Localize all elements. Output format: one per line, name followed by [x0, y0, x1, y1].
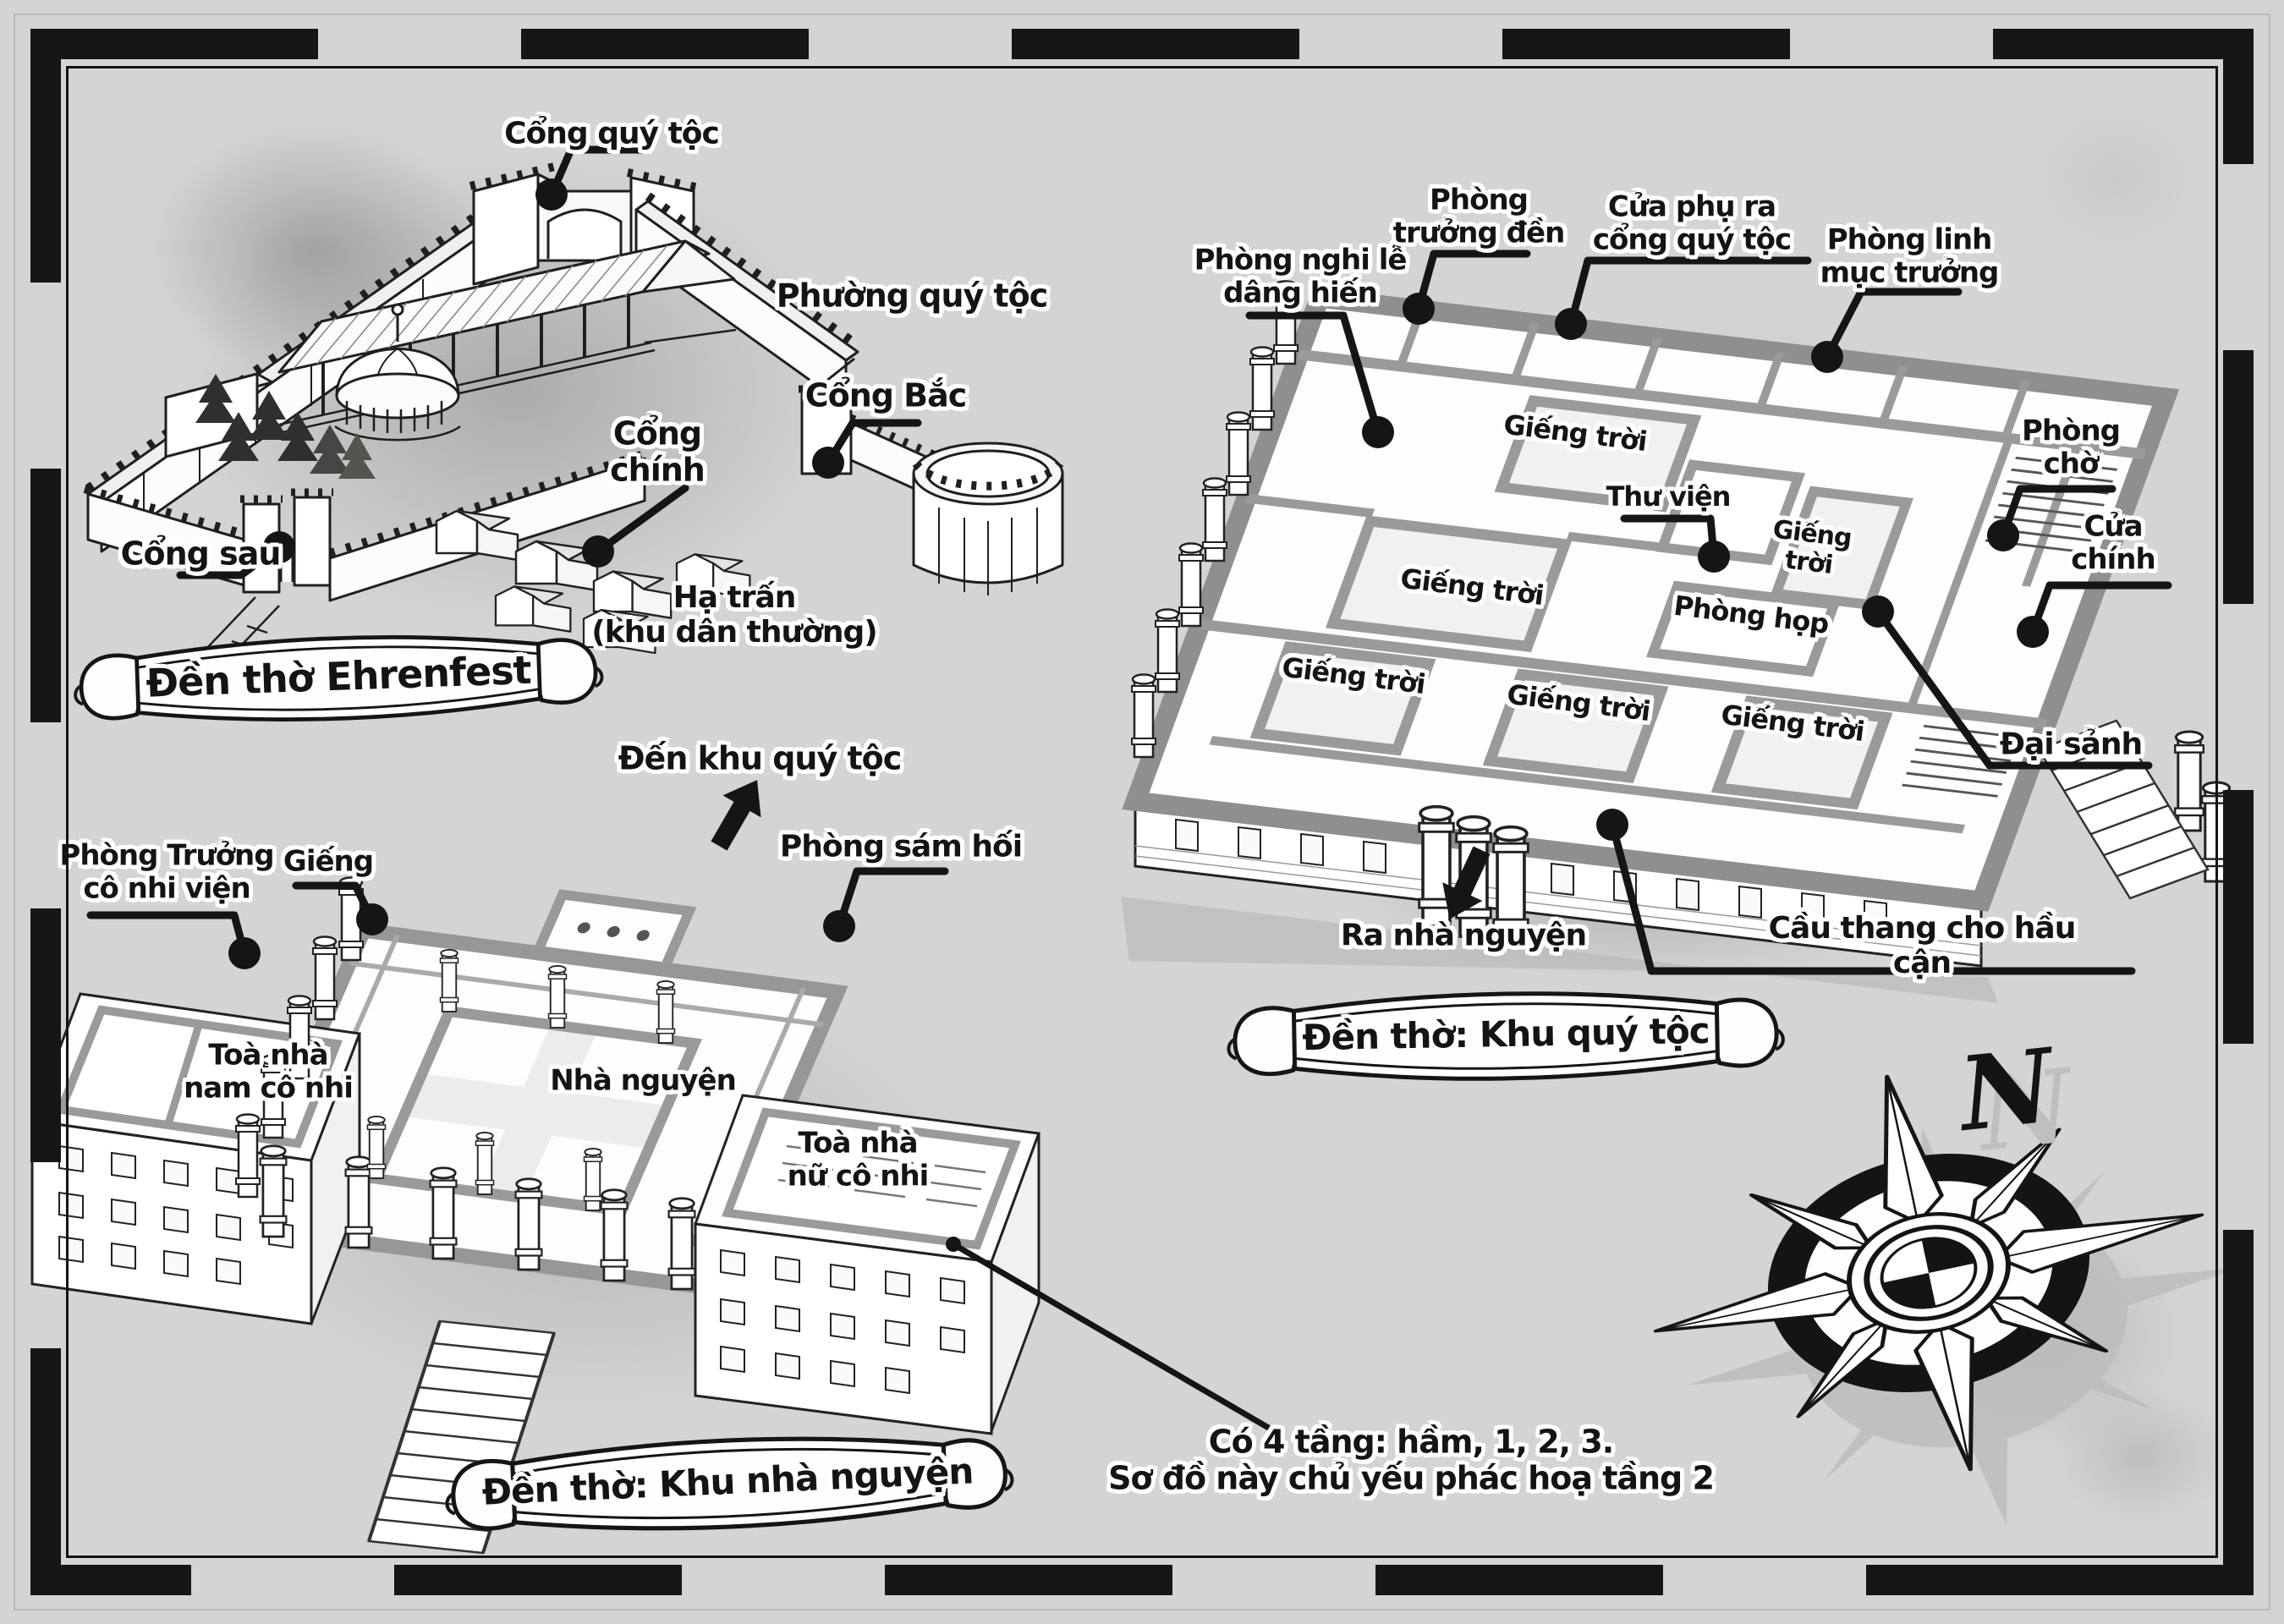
map-page: Cổng quý tộcPhường quý tộcCổng BắcCổng c…: [0, 0, 2284, 1624]
frame-corner: [30, 29, 61, 130]
frame-corner: [2223, 29, 2254, 130]
frame-dash-bottom: [30, 1565, 2254, 1595]
frame-dash-top: [30, 29, 2254, 59]
frame-inner-line: [66, 66, 2218, 1558]
frame-corner: [30, 1494, 61, 1595]
frame-dash-right: [2223, 29, 2254, 1595]
frame-corner: [2223, 1494, 2254, 1595]
frame-dash-left: [30, 29, 61, 1595]
